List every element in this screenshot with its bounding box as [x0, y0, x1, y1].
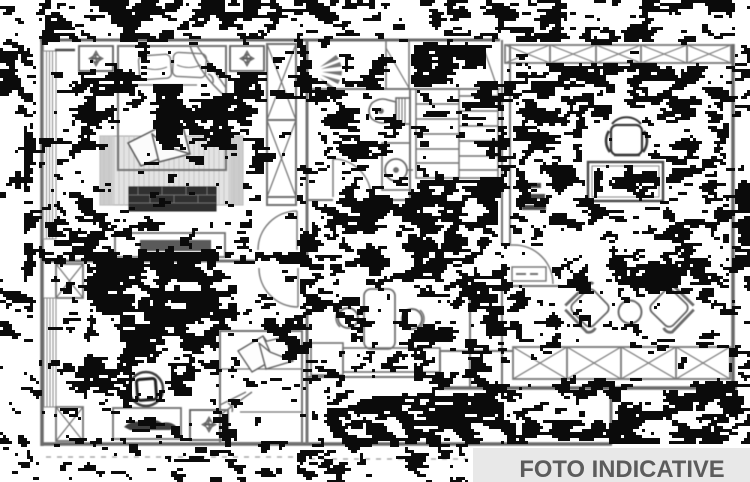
- svg-text:FOTO INDICATIVE: FOTO INDICATIVE: [519, 456, 724, 482]
